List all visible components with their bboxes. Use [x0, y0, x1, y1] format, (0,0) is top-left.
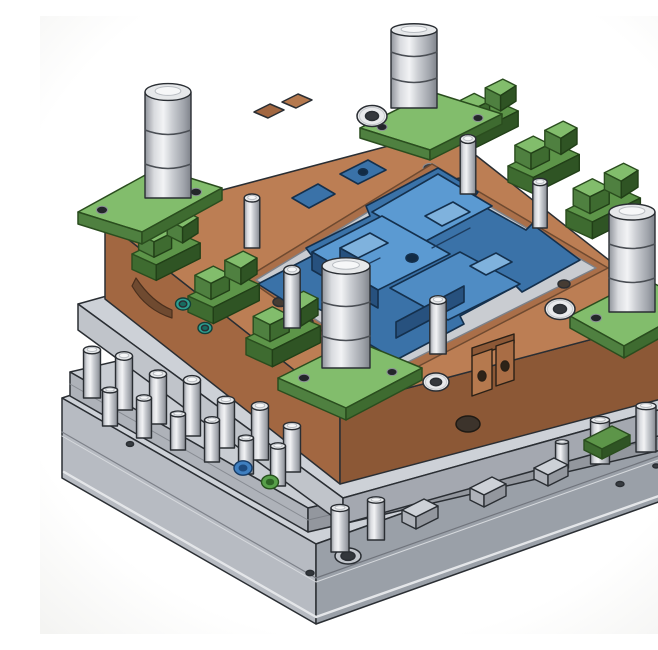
ejector-pin: [171, 411, 186, 450]
pad-screw-hole: [591, 314, 602, 322]
support-pillar: [331, 504, 349, 552]
base-hole: [306, 570, 314, 575]
core-pin: [284, 265, 300, 328]
teal-screw: [198, 322, 212, 333]
pad-screw-hole: [97, 206, 108, 214]
ejector-pin: [84, 346, 101, 398]
core-hole: [406, 254, 418, 262]
guide-pin: [322, 258, 370, 368]
core-pin: [244, 194, 260, 248]
pad-screw-hole: [299, 374, 310, 382]
latch-hole: [501, 361, 509, 371]
pad-screw-hole: [191, 188, 202, 196]
core-pin: [533, 178, 547, 228]
base-hole: [616, 482, 624, 487]
core-pin: [460, 135, 476, 194]
socket-cap-screw: [545, 299, 575, 320]
core-tab-hole: [359, 169, 368, 175]
ejector-pin: [103, 387, 118, 426]
core-pin: [430, 296, 446, 354]
mold-assembly-render: Isometric 3D rendering of an opened plas…: [40, 16, 658, 634]
support-pillar: [368, 497, 385, 540]
pad-screw-hole: [473, 115, 483, 122]
guide-pin: [145, 84, 191, 198]
teal-screw: [176, 298, 191, 310]
socket-cap-screw: [423, 373, 449, 391]
return-pin: [636, 402, 656, 452]
guide-pin: [391, 24, 437, 108]
ejector-pin: [137, 395, 152, 438]
ejector-pin: [205, 417, 220, 462]
guide-pin: [609, 204, 655, 312]
green-screw: [262, 475, 279, 489]
base-hole: [653, 464, 658, 468]
socket-cap-screw: [357, 106, 387, 127]
pad-screw-hole: [387, 369, 397, 376]
latch-hole: [478, 371, 486, 381]
base-hole: [126, 442, 133, 447]
floor-hole: [558, 280, 570, 288]
blue-screw: [234, 461, 252, 475]
front-face-hole: [456, 416, 480, 432]
